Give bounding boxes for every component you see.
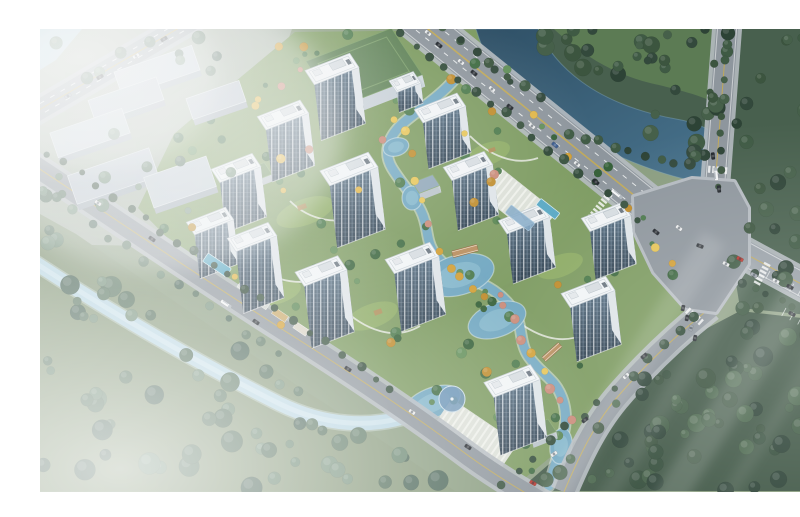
fog-overlays [40, 16, 800, 501]
scene-root [40, 16, 800, 501]
site-plan-svg [40, 16, 800, 501]
aerial-site-rendering [40, 16, 800, 501]
